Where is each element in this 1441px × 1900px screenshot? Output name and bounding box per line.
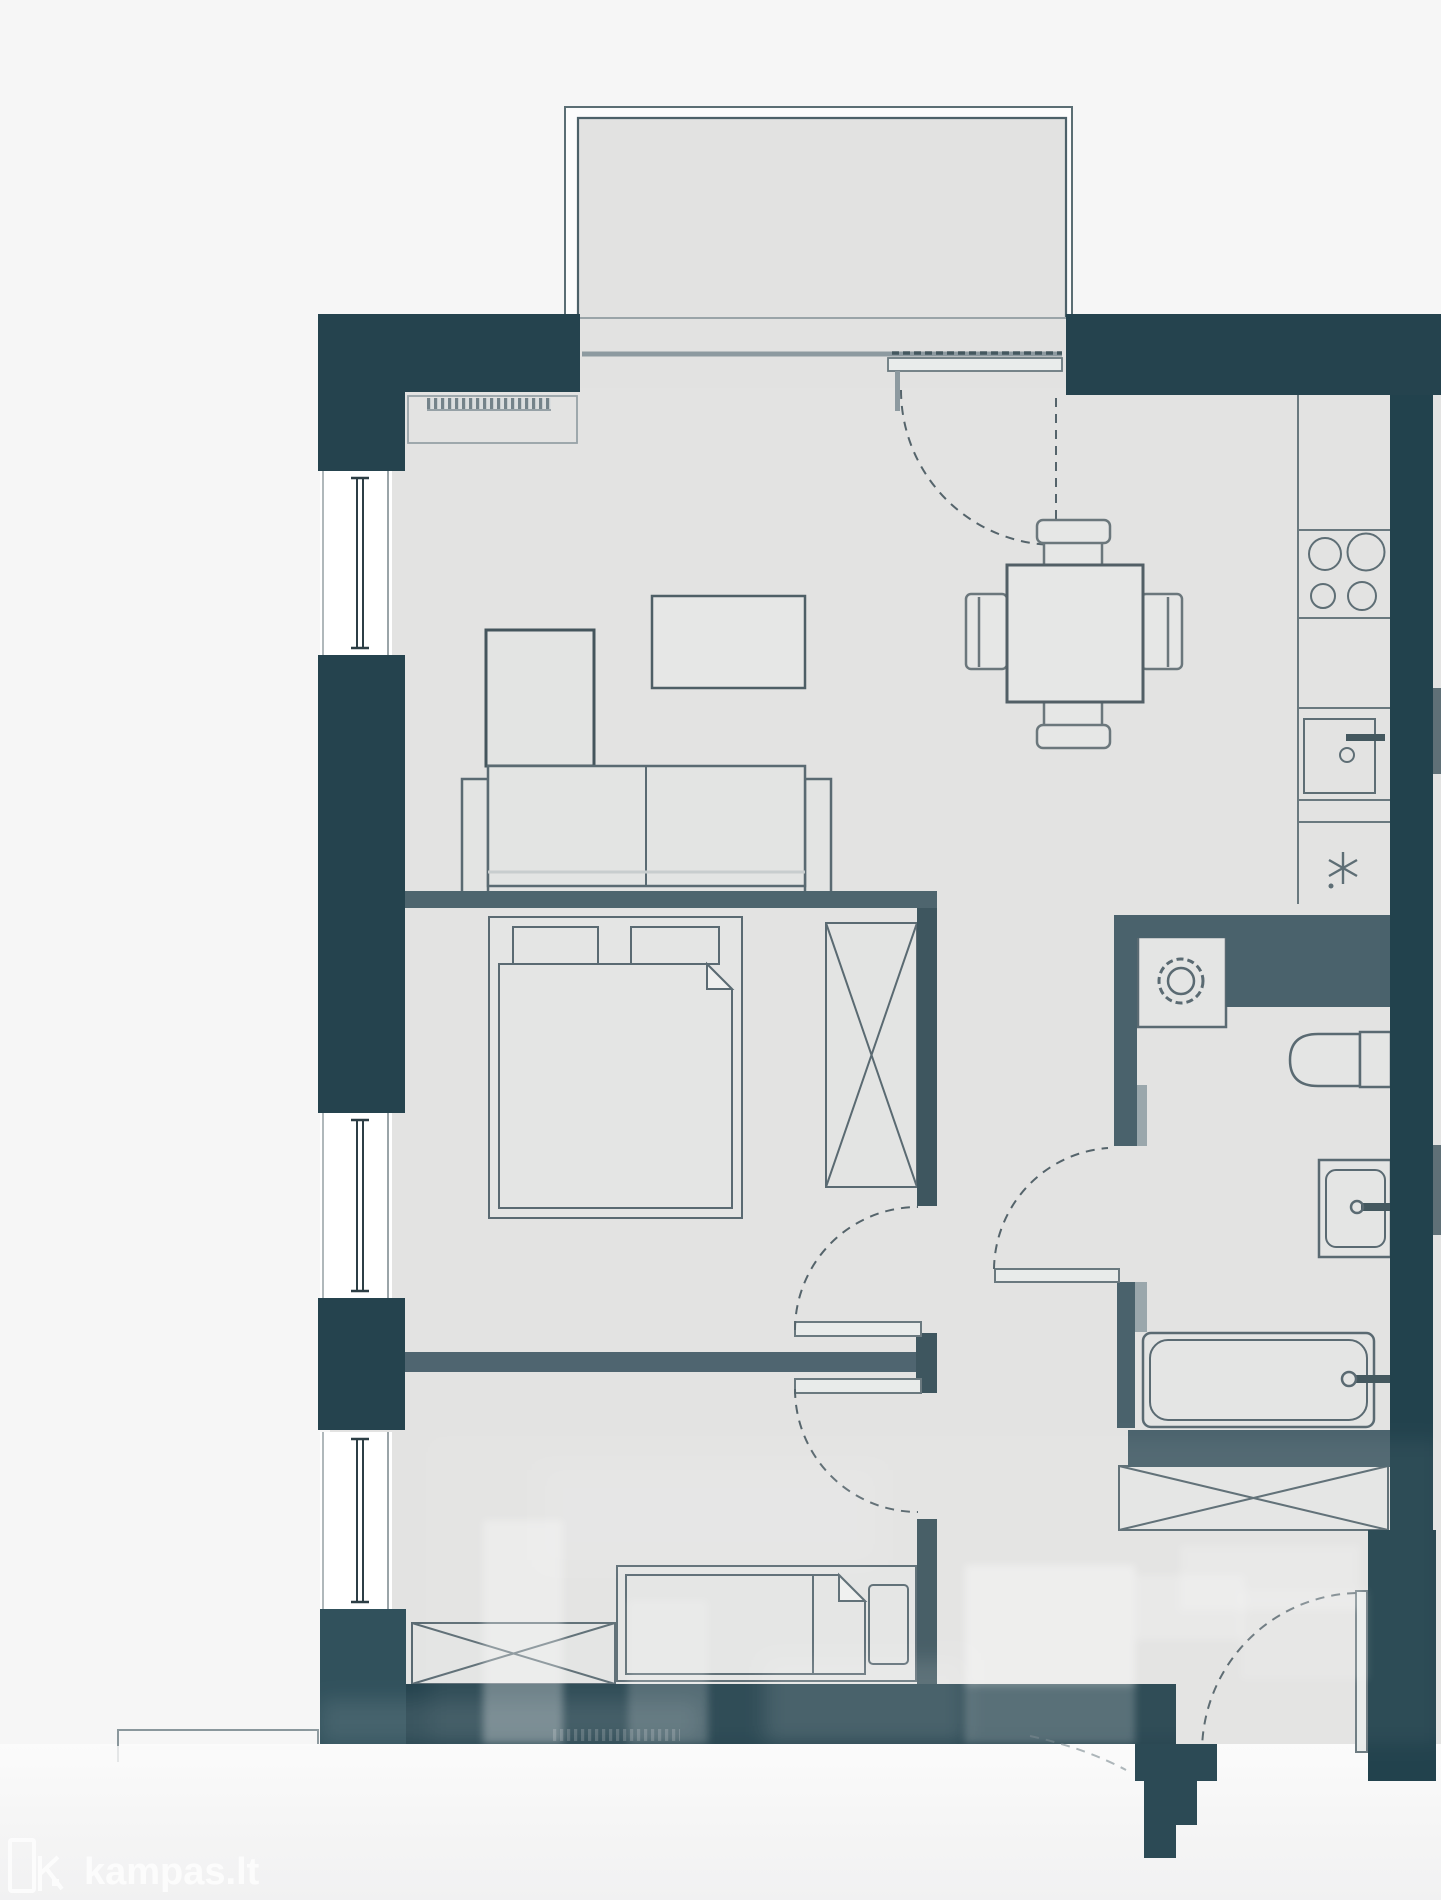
- svg-text:kampas.lt: kampas.lt: [84, 1851, 260, 1893]
